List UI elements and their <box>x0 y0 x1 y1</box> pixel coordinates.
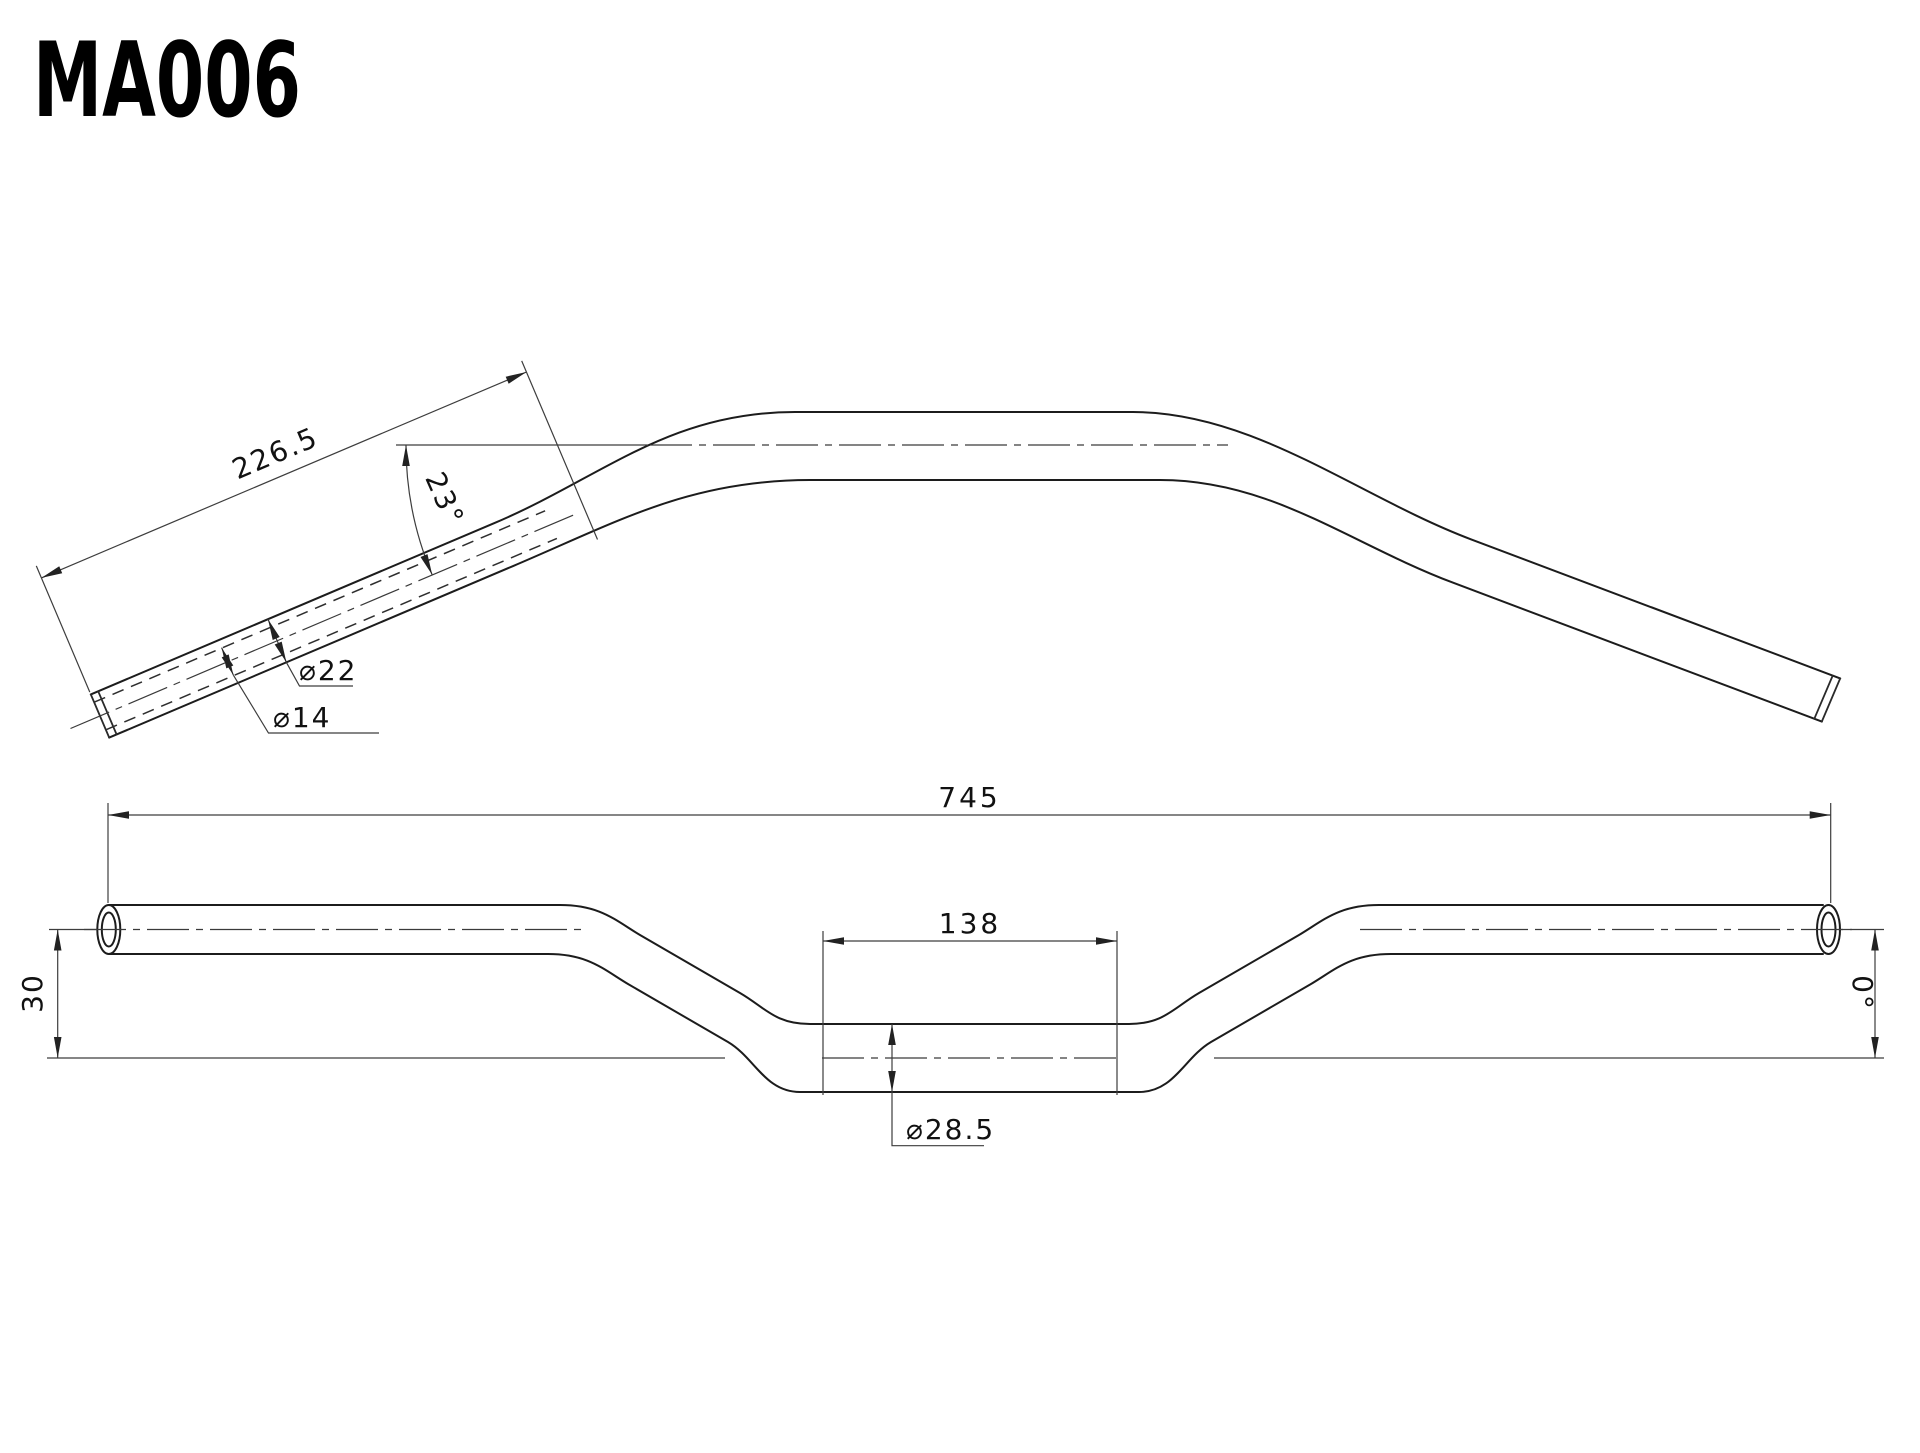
top-view-right-end-cap <box>1822 678 1840 721</box>
overall-width-label: 745 <box>938 781 1000 814</box>
arrowhead <box>402 445 410 466</box>
grip-axis-centerline <box>71 513 579 729</box>
clamp-width-dimension: 138 <box>823 907 1117 1095</box>
top-view: 226.5 23° ⌀22 ⌀14 <box>36 361 1840 738</box>
arrowhead <box>1096 937 1117 945</box>
arrowhead <box>888 1071 896 1092</box>
dimension-line <box>41 372 526 578</box>
clamp-width-label: 138 <box>939 907 1001 940</box>
extension-line <box>36 566 90 692</box>
front-view: 745 138 ⌀28.5 30 <box>16 781 1884 1146</box>
drawing-sheet: MA006 226.5 23° <box>0 0 1920 1453</box>
arrowhead <box>54 1037 62 1058</box>
arrowhead <box>275 642 290 664</box>
top-view-tube-upper-outline <box>91 412 1840 694</box>
grip-inner-diameter-label: ⌀14 <box>273 701 332 734</box>
handlebar-technical-drawing: MA006 226.5 23° <box>0 0 1920 1453</box>
top-view-tube-lower-outline <box>109 480 1822 738</box>
end-angle-dimension: 0° <box>1214 930 1884 1059</box>
arrowhead <box>54 930 62 951</box>
arrowhead <box>1810 811 1831 819</box>
arrowhead <box>1871 930 1879 951</box>
clamp-diameter-label: ⌀28.5 <box>906 1113 995 1146</box>
pullback-angle-dimension: 23° <box>402 445 471 576</box>
top-view-right-end-cap-inner-edge <box>1814 676 1832 719</box>
grip-length-label: 226.5 <box>227 420 323 486</box>
grip-outer-diameter-label: ⌀22 <box>299 654 358 687</box>
end-angle-label: 0° <box>1846 975 1879 1011</box>
arrowhead <box>888 1024 896 1045</box>
arrowhead <box>222 654 237 676</box>
arrowhead <box>108 811 129 819</box>
part-number-title: MA006 <box>33 21 301 141</box>
grip-length-dimension: 226.5 <box>36 361 597 692</box>
arrowhead <box>40 566 62 581</box>
extension-line <box>522 361 598 540</box>
arrowhead <box>823 937 844 945</box>
rise-dimension: 30 <box>16 930 725 1059</box>
pullback-angle-label: 23° <box>418 467 471 531</box>
overall-width-dimension: 745 <box>108 781 1831 903</box>
rise-label: 30 <box>16 973 49 1013</box>
arrowhead <box>1871 1037 1879 1058</box>
arrowhead <box>506 369 528 384</box>
clamp-diameter-dimension: ⌀28.5 <box>888 1024 995 1146</box>
